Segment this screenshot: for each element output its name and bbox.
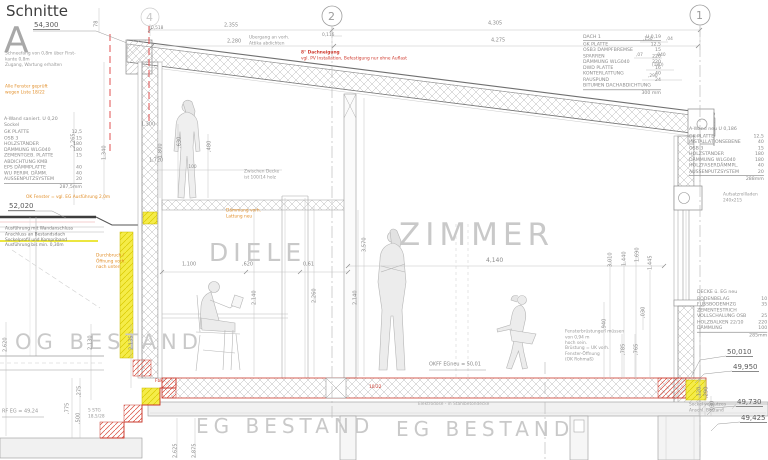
- legend-ceiling: DECKE ü. EG neu BODENBELAG10FUSSBODENHZG…: [697, 289, 767, 338]
- elektro-note: Elektrodose - in Stahlbetondecke: [418, 402, 489, 407]
- dim-label: 4,275: [491, 38, 505, 44]
- legend-wall-right: A-Wand neu U 0,186 GK PLATTE12,5INSTALLA…: [689, 126, 764, 182]
- level-49730: 49,730: [736, 398, 763, 407]
- dim-label: 1,300: [141, 122, 155, 128]
- dim-label: 2,135: [128, 335, 134, 350]
- grid-bubble-4: 4: [146, 11, 153, 24]
- section-drawing-canvas: Schnitte A 54,300 4 2 1 0,518 2,355 2,28…: [0, 0, 768, 460]
- dim-label: 2,625: [172, 443, 178, 458]
- attika-note: Übergang an vorh.Attika abdichten: [249, 35, 289, 46]
- post-grid2: [344, 94, 356, 378]
- roof-slope-note: 8° Dachneigung vgl. PV Installation, Bef…: [301, 50, 407, 61]
- left-gray-note: Schneefang von 0,8m über First-kante 0,8…: [5, 51, 76, 68]
- dim-label: ,290: [703, 387, 709, 398]
- figure-sitting-man: [196, 282, 243, 372]
- dim-label: ,500: [75, 413, 81, 424]
- daemmung-note: Dämmung vorh.Lattung neu: [226, 208, 261, 219]
- level-49425: 49,425: [740, 414, 767, 423]
- fenster-note: Fensterbrüstungen müssenvon 0,94 mhoch s…: [565, 329, 624, 363]
- dim-label: ,775: [64, 403, 70, 414]
- legend-header: A-Wand neu U 0,186: [689, 126, 764, 132]
- room-label-og-bestand: OG BESTAND: [15, 330, 203, 354]
- dim-label: ,630: [176, 137, 182, 148]
- legend-roof: DACH 1U 0,19 GK PLATTE12,5OSB3 DAMPFBREM…: [583, 34, 661, 96]
- right-small-note: Sockel verputzenAnschl. Bestand: [689, 402, 726, 413]
- dim-label: 2,140: [352, 290, 358, 305]
- room-label-eg-bestand-right: EG BESTAND: [396, 417, 574, 441]
- dim-label: 78: [93, 21, 99, 27]
- legend-total: 285mm: [697, 332, 767, 339]
- eg-wall-right: [658, 416, 700, 460]
- room-label-diele: DIELE: [209, 238, 306, 267]
- dim-label: 0,518: [151, 26, 163, 31]
- level-50010: 50,010: [726, 348, 753, 357]
- dim-label: 1,800: [157, 143, 163, 158]
- ok-fenster-note: OK Fenster = vgl. EG Ausführung 2,0m: [26, 195, 110, 200]
- legend-total: 288mm: [689, 175, 764, 182]
- dim-label: ,765: [633, 344, 639, 355]
- rolladen-note: Aufsatzrollladen240x215: [723, 192, 758, 203]
- fbk-note: Fbk: [155, 379, 163, 384]
- dim-label: 0,61: [303, 262, 314, 268]
- dim-label: ,275: [76, 386, 82, 397]
- dim-label: 3,570: [361, 237, 367, 252]
- stair-count-note: 5 STG18,5/28: [88, 408, 105, 419]
- dim-label: 1,445: [647, 255, 653, 270]
- room-label-eg-bestand-left: EG BESTAND: [196, 414, 374, 438]
- left-orange-note: Alle Fenster geprüftwegen Liste 18/22: [5, 84, 48, 95]
- level-49950: 49,950: [732, 363, 759, 372]
- left-black-note: Ausführung mit WandanschlussAnschluss an…: [5, 226, 73, 248]
- level-okff: OKFF EGneu = 50,01: [429, 362, 481, 368]
- legend-header: DACH 1: [583, 34, 601, 40]
- legend-total: 300 mm: [583, 89, 661, 96]
- dim-label: 2,280: [227, 39, 241, 45]
- grid-bubble-1: 1: [696, 9, 703, 22]
- floor-new: [162, 378, 706, 400]
- figure-child: [497, 296, 536, 370]
- dim-label: 2,355: [224, 23, 238, 29]
- durchbruch-note: Durchbruch /Öffnung vorh.nach unten: [96, 253, 126, 270]
- grid-bubble-2: 2: [328, 10, 335, 23]
- dim-label: ,100: [187, 165, 197, 170]
- level-og-roof: 52,020: [8, 202, 35, 211]
- dim-label: 4,140: [486, 258, 503, 265]
- dim-label: 3,010: [607, 252, 613, 267]
- legend-subheader: Sockel: [4, 122, 82, 128]
- legend-total: 287,5mm: [4, 183, 82, 190]
- dim-label: ,480: [206, 141, 212, 152]
- dim-label: 1,440: [621, 251, 627, 266]
- level-ridge: 54,300: [33, 21, 60, 30]
- dim-label: 1,340: [101, 145, 107, 160]
- floor-red-note: 10/22: [369, 385, 381, 390]
- dim-label: 2,130: [87, 335, 93, 350]
- dim-label: ,04: [666, 37, 673, 42]
- dim-label: 2,140: [251, 290, 257, 305]
- room-label-zimmer: ZIMMER: [399, 217, 554, 253]
- dim-label: ,030: [640, 307, 646, 318]
- dim-label: 2,875: [191, 443, 197, 458]
- dim-label: ,620: [242, 262, 253, 268]
- roof-slope-line2: vgl. PV Installation, Befestigung nur oh…: [301, 56, 407, 62]
- legend-wall-left: A-Wand saniert. U 0,20 Sockel GK PLATTE1…: [4, 116, 82, 189]
- dim-label: 4,305: [488, 21, 502, 27]
- dim-label: 1,100: [182, 262, 196, 268]
- level-rf-eg: RF EG = 49,24: [2, 409, 38, 415]
- legend-header: DECKE ü. EG neu: [697, 289, 767, 295]
- drawing-title: Schnitte: [6, 3, 68, 20]
- dim-label: ,120: [696, 387, 702, 398]
- dim-label: 2,620: [2, 337, 8, 352]
- dim-label: 1,720: [149, 158, 163, 164]
- dim-label: 2,260: [311, 288, 317, 303]
- dim-label: 0,116: [322, 33, 334, 38]
- dim-label: 1,690: [634, 247, 640, 262]
- dim-label: 2,265: [70, 133, 76, 148]
- zwischendecke-note: Zwischen Deckeist 100/14 holz: [244, 169, 279, 180]
